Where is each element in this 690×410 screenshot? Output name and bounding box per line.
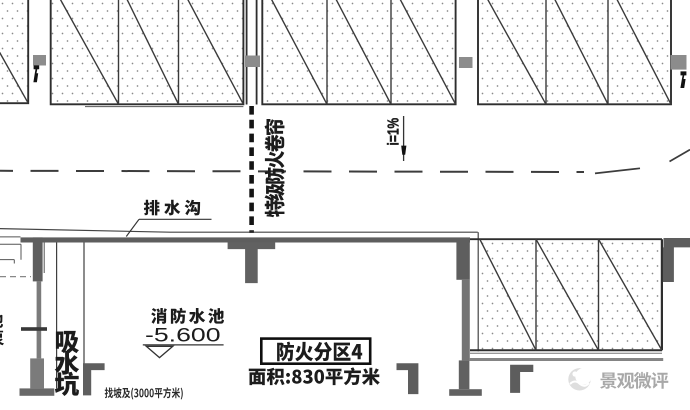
svg-text:-5.600: -5.600: [145, 325, 221, 346]
svg-text:i=1%: i=1%: [384, 118, 402, 146]
